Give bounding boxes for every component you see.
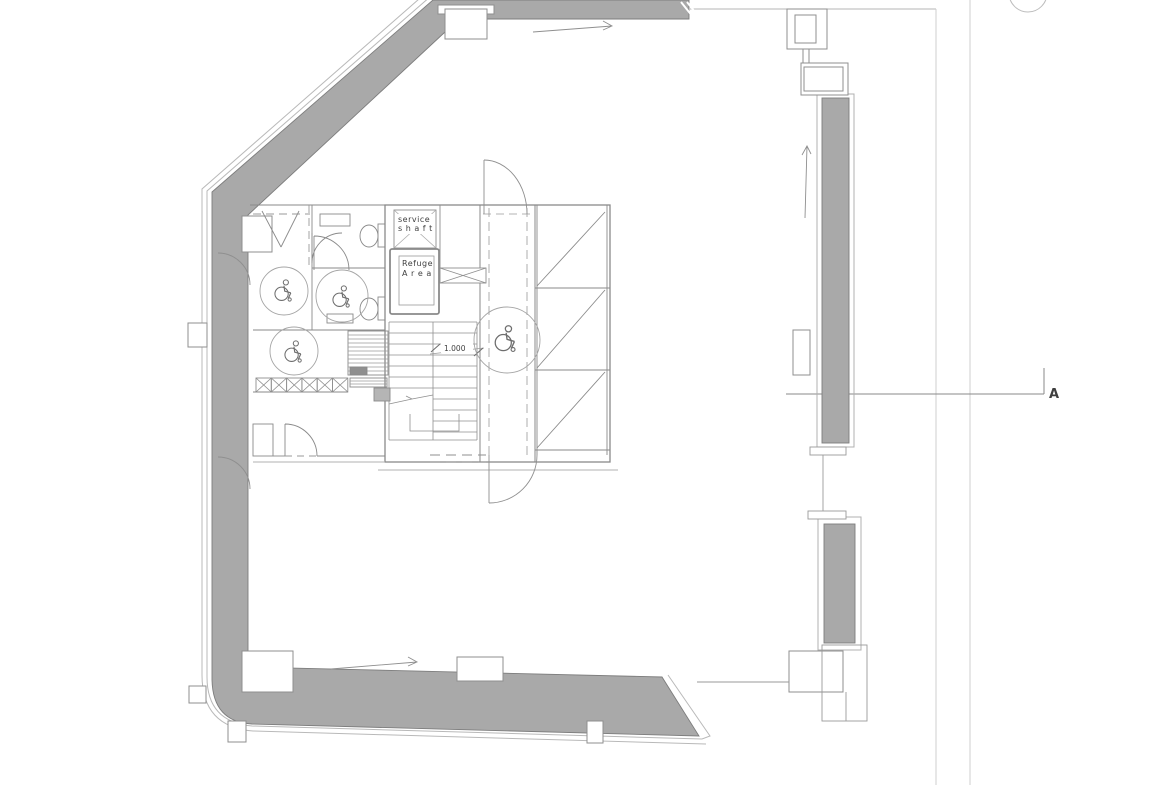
cubicle-doors [312, 233, 349, 270]
direction-arrow-icon [802, 146, 811, 218]
grid-bubble-icon [1009, 0, 1047, 12]
stair-level-label: 1.000 [444, 344, 466, 353]
site-grid-lines [690, 0, 1047, 785]
wheelchair-icon [275, 280, 291, 301]
closet [253, 424, 273, 456]
column [457, 657, 503, 681]
refuge-area: RefugeA r e a [390, 249, 439, 314]
louvre-hatch [348, 331, 390, 401]
basin-icon [320, 214, 350, 226]
service-shaft-label: services h a f t [398, 215, 433, 233]
door-swing-arc [285, 424, 317, 456]
column [242, 651, 293, 692]
window-strip-lower [824, 524, 855, 643]
section-marker-label: A [1049, 387, 1059, 402]
x-hatch-band [256, 378, 348, 392]
column [445, 9, 487, 39]
toilet-icons [360, 224, 385, 320]
column [789, 651, 843, 692]
wheelchair-icon [285, 341, 301, 362]
service-shaft: services h a f t [394, 210, 436, 248]
floor-plan-drawing: A [0, 0, 1170, 785]
window-strip-upper [822, 98, 849, 443]
door-swing-arc [314, 236, 349, 270]
lower-room [253, 392, 385, 462]
right-window-strips [808, 94, 861, 650]
wheelchair-icon [333, 286, 349, 307]
toilet-icon [360, 298, 378, 320]
direction-arrow-icon [533, 21, 612, 32]
door-swing-arc [312, 233, 342, 263]
direction-arrow-icon [331, 657, 417, 669]
refuge-area-label: RefugeA r e a [402, 259, 433, 278]
core: services h a f t RefugeA r e a [378, 160, 618, 503]
floor-plan-page: A [0, 0, 1170, 785]
toilet-icon [360, 225, 378, 247]
